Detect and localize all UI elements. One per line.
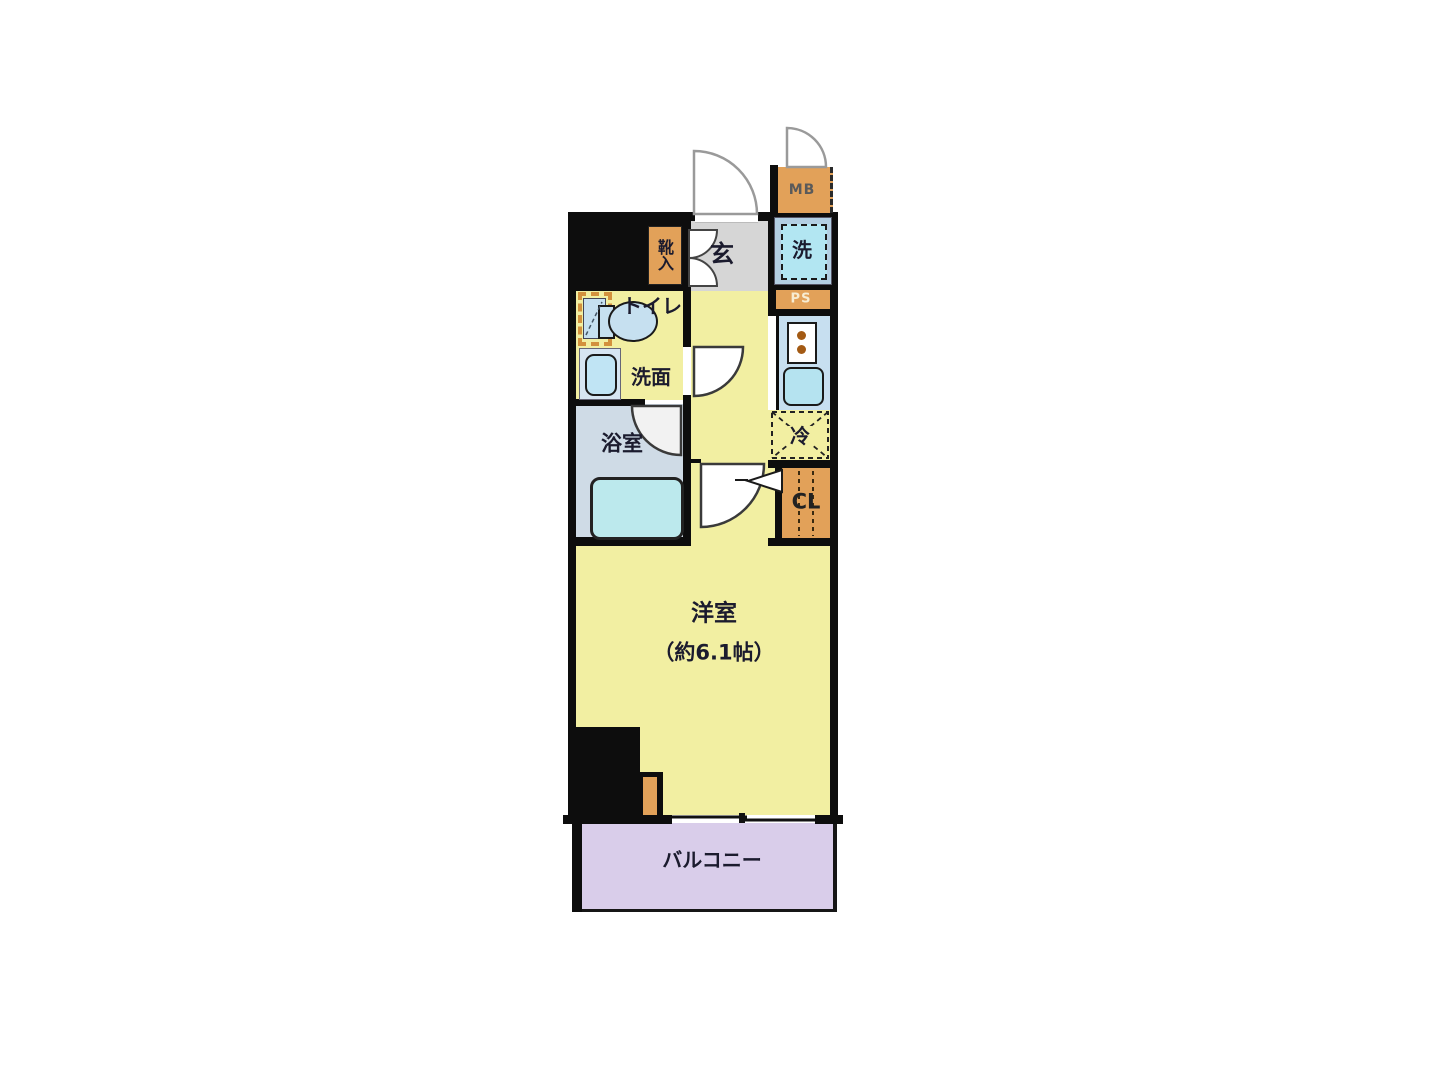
wall	[830, 212, 838, 820]
pipe-space-label: PS	[791, 293, 812, 306]
wall	[568, 212, 576, 820]
pillar	[576, 727, 640, 817]
meter-box-label: MB	[789, 183, 816, 197]
wall	[576, 399, 645, 406]
washstand-basin	[585, 354, 617, 396]
wall	[815, 815, 843, 824]
wall	[691, 459, 701, 463]
wall	[770, 165, 778, 215]
entrance-threshold	[695, 213, 758, 223]
pillar-duct	[643, 777, 657, 815]
wall	[683, 395, 691, 545]
floorplan-canvas: 玄 靴入 MB 洗 PS トイレ 洗面 浴室 冷 CL 洋室 （約6.1帖） バ…	[0, 0, 1434, 1067]
wall	[683, 291, 691, 347]
wall	[775, 460, 782, 546]
balcony-side-wall	[572, 815, 582, 912]
stove	[787, 322, 817, 364]
wall	[768, 309, 838, 316]
bathroom-label: 浴室	[601, 434, 643, 455]
burner-icon	[797, 345, 806, 354]
closet-label: CL	[792, 492, 821, 513]
hallway-floor	[691, 291, 768, 463]
toilet-label: トイレ	[622, 296, 682, 316]
entrance-door-icon	[694, 151, 757, 214]
balcony-label: バルコニー	[662, 850, 762, 870]
refrigerator-label: 冷	[788, 426, 812, 446]
bathtub	[590, 477, 684, 540]
burner-icon	[797, 331, 806, 340]
entrance-label: 玄	[710, 242, 734, 266]
kitchen-sink	[783, 367, 824, 406]
western-room-label: 洋室	[691, 603, 737, 626]
meter-box-door-icon	[787, 128, 826, 167]
western-room-size-label: （約6.1帖）	[653, 643, 774, 664]
shoe-cabinet-label: 靴入	[656, 239, 672, 271]
washer-label: 洗	[792, 240, 812, 260]
washroom-label: 洗面	[631, 367, 671, 387]
